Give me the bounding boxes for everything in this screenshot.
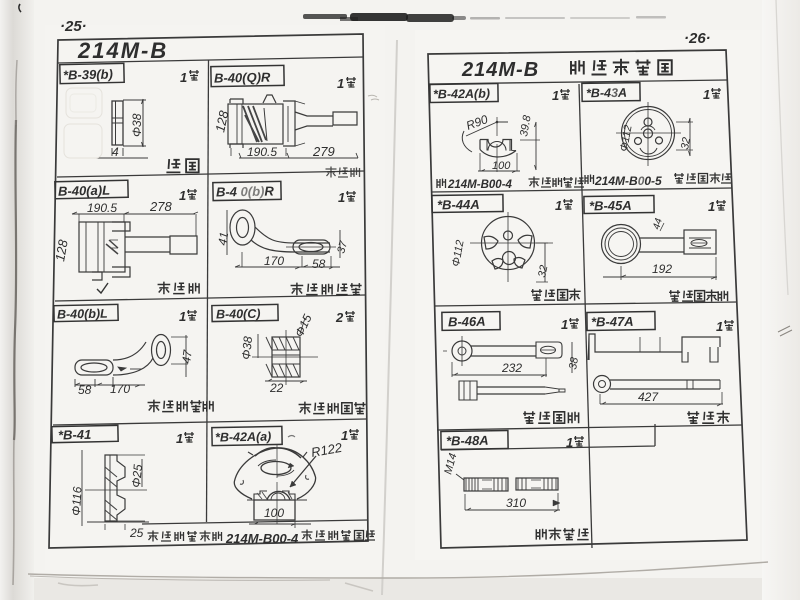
svg-text:1: 1: [708, 199, 715, 214]
svg-text:25: 25: [129, 526, 144, 540]
svg-text:32: 32: [536, 264, 550, 278]
svg-text:*B-47A: *B-47A: [591, 314, 634, 330]
svg-text:Φ116: Φ116: [69, 486, 85, 516]
svg-text:·26·: ·26·: [684, 30, 711, 47]
svg-text:278: 278: [149, 199, 172, 214]
svg-text:170: 170: [110, 382, 130, 396]
svg-text:Φ38: Φ38: [130, 113, 144, 137]
svg-text:B-40(b)L: B-40(b)L: [57, 307, 108, 322]
svg-text:B-46A: B-46A: [448, 314, 486, 330]
svg-text:4: 4: [112, 145, 119, 159]
svg-text:B-4 0(b)R: B-4 0(b)R: [216, 184, 275, 200]
svg-text:1: 1: [338, 190, 345, 205]
svg-text:1: 1: [561, 317, 568, 332]
svg-text:Φ25: Φ25: [129, 463, 145, 488]
svg-text:214M-B00-5: 214M-B00-5: [594, 174, 662, 188]
svg-text:1: 1: [176, 431, 183, 446]
svg-text:Φ38: Φ38: [239, 335, 255, 360]
svg-text:*B-41: *B-41: [58, 427, 92, 443]
svg-text:1: 1: [703, 87, 710, 102]
svg-text:1: 1: [555, 198, 562, 213]
svg-text:1: 1: [337, 76, 344, 91]
svg-text:1: 1: [179, 309, 186, 324]
svg-text:*B-45A: *B-45A: [589, 198, 632, 214]
svg-text:310: 310: [506, 496, 526, 510]
svg-text:32: 32: [679, 136, 693, 150]
svg-text:1: 1: [180, 70, 187, 85]
svg-text:*B-48A: *B-48A: [446, 433, 489, 449]
svg-text:*B-39(b): *B-39(b): [63, 67, 113, 83]
svg-text:1: 1: [566, 435, 573, 450]
svg-text:*B-44A: *B-44A: [437, 197, 480, 213]
svg-text:B-40(a)L: B-40(a)L: [58, 183, 110, 199]
svg-text:B-40(C): B-40(C): [216, 307, 261, 322]
svg-text:41: 41: [215, 231, 231, 247]
svg-text:192: 192: [652, 262, 672, 276]
svg-text:100: 100: [264, 506, 284, 520]
svg-text:*B-43A: *B-43A: [586, 86, 627, 101]
svg-text:214M-B00-4: 214M-B00-4: [225, 531, 299, 546]
svg-text:1: 1: [552, 88, 559, 103]
svg-text:2: 2: [335, 310, 344, 325]
svg-text:1: 1: [341, 428, 348, 443]
svg-text:·25·: ·25·: [60, 18, 87, 35]
svg-text:214M-B00-4: 214M-B00-4: [447, 179, 513, 191]
svg-text:58: 58: [78, 383, 92, 397]
svg-text:190.5: 190.5: [87, 201, 117, 215]
svg-text:58: 58: [312, 257, 326, 271]
svg-text:22: 22: [269, 381, 284, 395]
svg-text:214M-B: 214M-B: [461, 59, 539, 81]
svg-text:B-40(Q)R: B-40(Q)R: [214, 70, 271, 86]
svg-text:427: 427: [638, 390, 659, 404]
svg-text:190.5: 190.5: [247, 145, 277, 159]
svg-text:279: 279: [312, 144, 335, 159]
svg-text:232: 232: [501, 361, 522, 375]
svg-text:214M-B: 214M-B: [77, 38, 168, 63]
svg-text:170: 170: [264, 254, 284, 268]
svg-text:100: 100: [492, 160, 511, 172]
svg-text:1: 1: [179, 188, 186, 203]
svg-text:*B-42A(b): *B-42A(b): [433, 87, 490, 102]
svg-text:1: 1: [716, 319, 723, 334]
svg-text:*B-42A(a): *B-42A(a): [215, 430, 272, 445]
